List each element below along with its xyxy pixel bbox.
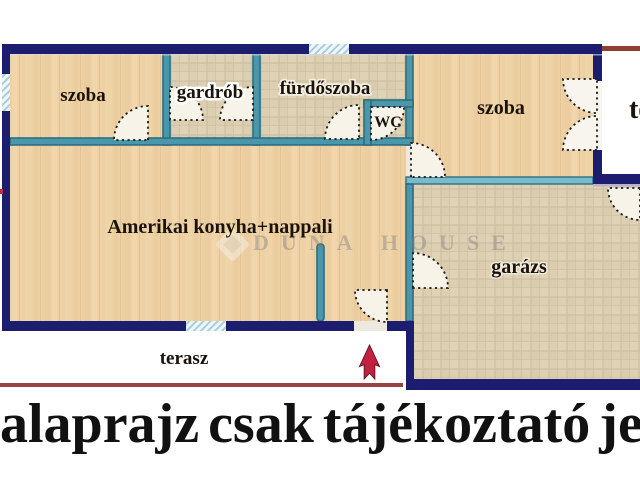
svg-text:alaprajz csak tájékoztató jel: alaprajz csak tájékoztató jel <box>0 393 640 455</box>
svg-text:szoba: szoba <box>477 97 525 119</box>
svg-text:garázs: garázs <box>491 256 547 278</box>
svg-text:Amerikai konyha+nappali: Amerikai konyha+nappali <box>107 216 333 238</box>
svg-text:szoba: szoba <box>60 85 106 106</box>
svg-text:te: te <box>629 94 640 125</box>
svg-text:gardrób: gardrób <box>177 82 244 103</box>
svg-text:WC: WC <box>374 114 402 131</box>
svg-text:terasz: terasz <box>160 348 209 369</box>
svg-text:fürdőszoba: fürdőszoba <box>280 78 371 99</box>
